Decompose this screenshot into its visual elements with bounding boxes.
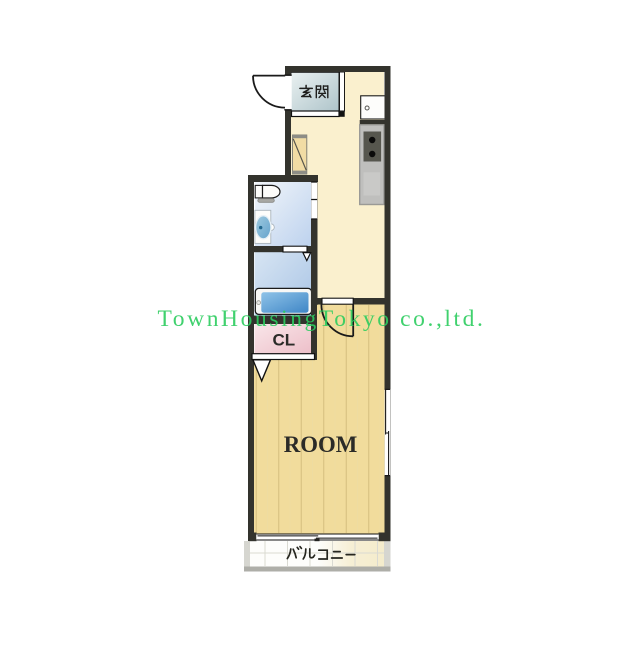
svg-text:ROOM: ROOM	[284, 432, 357, 457]
svg-text:TownHousingTokyo co.,ltd.: TownHousingTokyo co.,ltd.	[157, 306, 485, 332]
svg-text:CL: CL	[272, 330, 295, 349]
